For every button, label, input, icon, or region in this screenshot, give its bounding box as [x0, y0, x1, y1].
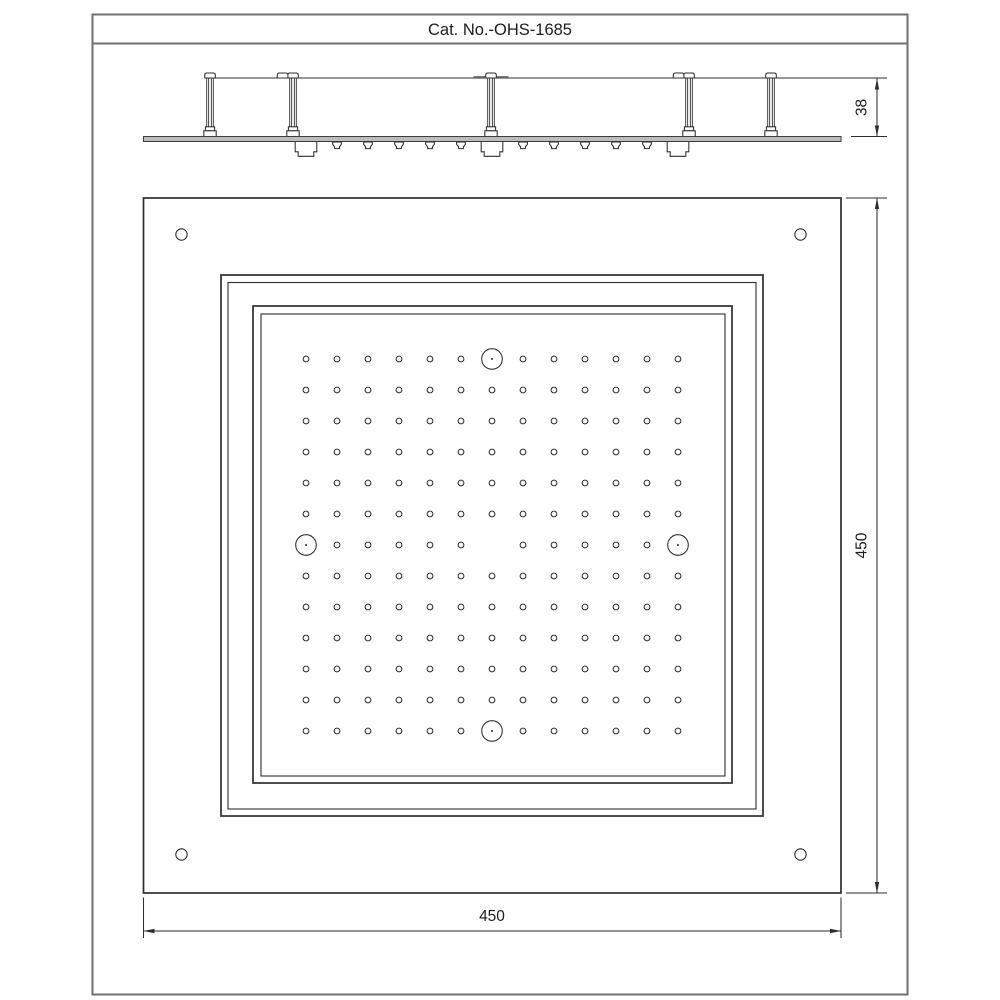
spray-hole: [365, 728, 371, 734]
function-circle-center-dot: [677, 544, 679, 546]
spray-hole: [334, 418, 340, 424]
nozzle: [395, 142, 404, 149]
spray-hole: [396, 573, 402, 579]
spray-hole: [458, 542, 464, 548]
spray-hole: [458, 387, 464, 393]
page-title: Cat. No.-OHS-1685: [428, 21, 572, 39]
spray-hole: [427, 728, 433, 734]
spray-hole: [489, 449, 495, 455]
spray-hole: [613, 449, 619, 455]
spray-hole: [458, 728, 464, 734]
nozzle: [333, 142, 342, 149]
spray-hole: [644, 418, 650, 424]
spray-hole: [365, 666, 371, 672]
spray-hole: [458, 635, 464, 641]
spray-hole: [613, 418, 619, 424]
spray-hole: [551, 573, 557, 579]
spray-hole: [489, 604, 495, 610]
spray-hole: [427, 480, 433, 486]
spray-hole: [427, 387, 433, 393]
spray-hole: [520, 387, 526, 393]
spray-hole: [334, 387, 340, 393]
function-circle-center-dot: [305, 544, 307, 546]
spray-hole: [458, 511, 464, 517]
spray-hole: [675, 480, 681, 486]
spray-hole: [613, 697, 619, 703]
spray-hole: [365, 480, 371, 486]
nozzle: [519, 142, 528, 149]
spray-hole: [613, 542, 619, 548]
spray-hole: [613, 511, 619, 517]
post-foot-lower: [683, 131, 695, 137]
spray-hole: [613, 604, 619, 610]
spray-hole: [303, 666, 309, 672]
spray-hole: [582, 697, 588, 703]
spray-hole: [334, 604, 340, 610]
spray-hole: [675, 697, 681, 703]
spray-hole: [644, 511, 650, 517]
spray-hole: [520, 666, 526, 672]
spray-hole: [582, 387, 588, 393]
spray-hole: [644, 604, 650, 610]
spray-hole: [551, 387, 557, 393]
post-cap: [684, 73, 695, 78]
corner-hole: [176, 849, 187, 860]
corner-hole: [795, 229, 806, 240]
spray-hole: [551, 449, 557, 455]
spray-hole: [613, 666, 619, 672]
spray-hole: [458, 573, 464, 579]
technical-drawing: Cat. No.-OHS-1685 38: [0, 0, 1000, 1000]
dim-front-width: 450: [144, 898, 842, 939]
spray-hole: [644, 697, 650, 703]
spray-hole: [644, 387, 650, 393]
spray-hole: [427, 356, 433, 362]
nozzle: [426, 142, 435, 149]
spray-hole: [644, 573, 650, 579]
spray-hole: [551, 728, 557, 734]
post-foot-upper: [684, 127, 693, 131]
spray-hole: [303, 418, 309, 424]
spray-hole: [489, 697, 495, 703]
spray-hole: [520, 604, 526, 610]
spray-hole: [644, 542, 650, 548]
post-foot-lower: [765, 131, 777, 137]
spray-hole: [303, 511, 309, 517]
spray-hole: [334, 356, 340, 362]
spray-hole: [644, 480, 650, 486]
spray-hole: [303, 635, 309, 641]
spray-hole: [303, 387, 309, 393]
inlet-box: [295, 142, 317, 156]
spray-hole: [427, 604, 433, 610]
spray-hole: [334, 542, 340, 548]
spray-hole: [458, 449, 464, 455]
spray-hole: [551, 697, 557, 703]
spray-hole: [582, 728, 588, 734]
spray-hole: [458, 666, 464, 672]
spray-hole: [644, 728, 650, 734]
spray-hole: [334, 480, 340, 486]
arrow-up-icon: [875, 79, 879, 90]
nozzle: [364, 142, 373, 149]
spray-hole: [520, 418, 526, 424]
nozzle: [581, 142, 590, 149]
nozzle: [550, 142, 559, 149]
spray-hole: [613, 728, 619, 734]
spray-hole: [489, 635, 495, 641]
spray-hole: [458, 356, 464, 362]
side-view: 38: [144, 73, 888, 156]
spray-hole: [675, 573, 681, 579]
shower-plate-edge: [144, 137, 842, 142]
spray-hole: [551, 480, 557, 486]
spray-hole: [365, 604, 371, 610]
spray-hole: [613, 356, 619, 362]
arrow-down-icon: [875, 882, 879, 893]
spray-hole: [582, 542, 588, 548]
post-cap: [205, 73, 216, 78]
spray-hole: [427, 449, 433, 455]
spray-hole: [582, 573, 588, 579]
spray-hole: [458, 480, 464, 486]
function-circle-center-dot: [491, 358, 493, 360]
spray-hole: [520, 635, 526, 641]
spray-hole: [520, 480, 526, 486]
post-cap: [766, 73, 777, 78]
spray-hole: [303, 573, 309, 579]
spray-hole: [582, 356, 588, 362]
spray-hole: [303, 480, 309, 486]
spray-hole: [489, 418, 495, 424]
spray-hole: [675, 604, 681, 610]
spray-hole: [396, 449, 402, 455]
spray-hole: [303, 356, 309, 362]
corner-hole: [176, 229, 187, 240]
mounting-posts: [204, 73, 777, 137]
spray-hole: [396, 666, 402, 672]
spray-hole: [365, 418, 371, 424]
spray-hole: [365, 511, 371, 517]
spray-hole: [427, 511, 433, 517]
post-cap-secondary: [277, 73, 288, 78]
spray-hole-grid: [303, 356, 681, 734]
spray-hole: [520, 573, 526, 579]
spray-hole: [582, 480, 588, 486]
spray-hole: [675, 449, 681, 455]
spray-hole: [520, 511, 526, 517]
spray-hole: [551, 356, 557, 362]
face-frame-outer: [253, 306, 732, 783]
corner-hole: [795, 849, 806, 860]
spray-hole: [303, 604, 309, 610]
spray-hole: [489, 511, 495, 517]
spray-hole: [613, 387, 619, 393]
spray-hole: [520, 449, 526, 455]
spray-hole: [334, 449, 340, 455]
spray-hole: [613, 635, 619, 641]
spray-hole: [427, 542, 433, 548]
spray-hole: [520, 542, 526, 548]
spray-hole: [675, 666, 681, 672]
inlet-box: [667, 142, 689, 156]
spray-hole: [551, 511, 557, 517]
spray-hole: [334, 697, 340, 703]
spray-hole: [489, 387, 495, 393]
spray-hole: [427, 573, 433, 579]
spray-hole: [551, 635, 557, 641]
spray-hole: [396, 356, 402, 362]
nozzle: [612, 142, 621, 149]
post-foot-lower: [287, 131, 299, 137]
spray-hole: [489, 666, 495, 672]
spray-hole: [396, 480, 402, 486]
spray-hole: [427, 666, 433, 672]
spray-hole: [551, 666, 557, 672]
dim-side-height: 38: [851, 79, 887, 137]
spray-hole: [489, 480, 495, 486]
spray-hole: [303, 728, 309, 734]
post-cap-secondary: [673, 73, 684, 78]
face-frame-inner: [261, 314, 725, 776]
arrow-down-icon: [875, 126, 879, 137]
spray-hole: [551, 542, 557, 548]
post-foot-upper: [486, 127, 495, 131]
drawing-canvas: Cat. No.-OHS-1685 38: [0, 0, 1000, 1000]
spray-hole: [334, 635, 340, 641]
spray-hole: [427, 635, 433, 641]
spray-hole: [582, 635, 588, 641]
spray-hole: [520, 728, 526, 734]
spray-hole: [365, 635, 371, 641]
spray-hole: [303, 449, 309, 455]
spray-hole: [458, 697, 464, 703]
post-cap: [486, 73, 497, 78]
spray-hole: [520, 356, 526, 362]
spray-hole: [365, 697, 371, 703]
spray-hole: [582, 418, 588, 424]
spray-hole: [551, 418, 557, 424]
post-cap: [288, 73, 299, 78]
spray-hole: [675, 728, 681, 734]
spray-hole: [365, 387, 371, 393]
spray-hole: [675, 387, 681, 393]
spray-hole: [365, 356, 371, 362]
spray-hole: [396, 635, 402, 641]
spray-hole: [582, 604, 588, 610]
post-foot-upper: [205, 127, 214, 131]
function-circle-center-dot: [491, 730, 493, 732]
spray-hole: [675, 635, 681, 641]
dim-front-width-label: 450: [479, 908, 505, 925]
page-border: [93, 15, 908, 995]
spray-hole: [675, 418, 681, 424]
spray-hole: [396, 387, 402, 393]
post-foot-lower: [204, 131, 216, 137]
spray-hole: [644, 449, 650, 455]
spray-hole: [675, 356, 681, 362]
spray-hole: [396, 542, 402, 548]
spray-hole: [458, 604, 464, 610]
nozzle: [457, 142, 466, 149]
spray-hole: [303, 697, 309, 703]
spray-hole: [427, 697, 433, 703]
spray-hole: [365, 449, 371, 455]
spray-hole: [675, 511, 681, 517]
post-foot-upper: [766, 127, 775, 131]
spray-hole: [613, 573, 619, 579]
spray-hole: [644, 666, 650, 672]
dim-front-height: 450: [846, 198, 887, 893]
spray-hole: [396, 418, 402, 424]
function-circles: [296, 349, 689, 742]
spray-hole: [396, 697, 402, 703]
front-view: 450 450: [144, 198, 888, 938]
post-foot-upper: [288, 127, 297, 131]
spray-hole: [613, 480, 619, 486]
corner-mounting-holes: [176, 229, 806, 860]
dim-front-height-label: 450: [854, 532, 871, 558]
spray-hole: [334, 573, 340, 579]
spray-hole: [365, 542, 371, 548]
spray-hole: [644, 635, 650, 641]
spray-hole: [582, 666, 588, 672]
ceiling-plate-outline: [144, 198, 842, 893]
nozzle: [643, 142, 652, 149]
spray-hole: [582, 511, 588, 517]
inlet-boxes: [295, 142, 689, 156]
spray-hole: [334, 666, 340, 672]
spray-hole: [520, 697, 526, 703]
spray-hole: [427, 418, 433, 424]
spray-hole: [458, 418, 464, 424]
arrow-right-icon: [830, 929, 841, 933]
spray-hole: [396, 604, 402, 610]
dim-side-height-label: 38: [854, 99, 871, 116]
inlet-box: [481, 142, 503, 156]
spray-hole: [582, 449, 588, 455]
arrow-left-icon: [144, 929, 155, 933]
spray-hole: [396, 511, 402, 517]
spray-hole: [396, 728, 402, 734]
post-foot-lower: [485, 131, 497, 137]
arrow-up-icon: [875, 198, 879, 209]
spray-hole: [644, 356, 650, 362]
spray-hole: [551, 604, 557, 610]
spray-hole: [334, 728, 340, 734]
spray-hole: [489, 573, 495, 579]
spray-hole: [334, 511, 340, 517]
spray-hole: [365, 573, 371, 579]
